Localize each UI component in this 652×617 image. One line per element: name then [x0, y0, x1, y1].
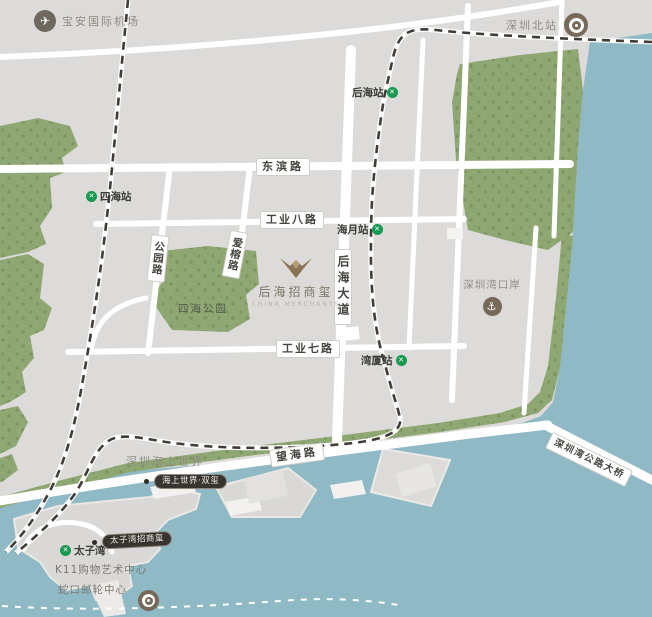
green-area-left-top: [0, 118, 78, 258]
houhai-cmsk-logo-emblem: [278, 256, 314, 280]
plane-icon: ✈: [34, 10, 56, 32]
poi-airport: ✈ 宝安国际机场: [34, 10, 140, 32]
poi-cruise-center-label: 蛇口邮轮中心: [58, 582, 127, 597]
poi-bay-port: 深圳湾口岸 ⚓: [452, 277, 532, 316]
metro-icon: ✕: [86, 191, 97, 202]
anchor-icon: ⚓: [483, 297, 502, 316]
station-label: 海月站: [337, 222, 369, 237]
poi-bay-port-label: 深圳湾口岸: [452, 277, 532, 292]
building-block: [447, 228, 463, 239]
road-west-connector: [90, 298, 146, 352]
poi-north-station-label: 深圳北站: [506, 17, 558, 33]
poi-north-station: 深圳北站: [506, 13, 588, 37]
poi-sihai-park-label: 四海公园: [178, 301, 228, 316]
map-base-layer: [0, 0, 652, 617]
road-label-gongye7: 工业七路: [276, 340, 340, 358]
green-area-left-low: [0, 406, 28, 454]
metro-icon: ✕: [372, 224, 383, 235]
metro-icon: ✕: [60, 545, 71, 556]
train-target-icon: [564, 13, 588, 37]
poi-dot-marker: [144, 479, 149, 484]
road-label-dongbin: 东滨路: [256, 158, 310, 176]
metro-icon: ✕: [396, 355, 407, 366]
poi-sea-world-label: 深圳海上世界: [126, 453, 204, 469]
project-logo-name: 后海招商玺: [244, 283, 348, 300]
green-area-right: [452, 49, 583, 250]
map-canvas: 东滨路 工业八路 工业七路 望海路 后海大道 公园路 爱榕路 深圳湾公路大桥 ✕…: [0, 0, 652, 617]
station-houhai: 后海站 ✕: [352, 85, 398, 100]
road-vertical-530: [524, 228, 536, 413]
station-label: 四海站: [100, 189, 132, 204]
poi-sea-world-twin: 海上世界·双玺: [144, 474, 227, 489]
project-logo: 后海招商玺 CHINA MERCHANTS: [244, 256, 348, 308]
poi-airport-label: 宝安国际机场: [62, 13, 140, 29]
station-haiyue: 海月站 ✕: [337, 222, 383, 237]
green-area-left-mid: [0, 254, 52, 406]
poi-dot-marker: [92, 540, 97, 545]
project-logo-subtext: CHINA MERCHANTS: [244, 301, 348, 308]
road-gongye7: [68, 346, 464, 352]
station-label: 湾厦站: [361, 353, 393, 368]
metro-icon: ✕: [387, 87, 398, 98]
green-area-left-low2: [0, 454, 18, 482]
building-block: [343, 326, 359, 340]
sea-world-twin-badge: 海上世界·双玺: [154, 474, 227, 489]
station-wanxia: 湾厦站 ✕: [361, 353, 407, 368]
station-sihai: ✕ 四海站: [86, 189, 132, 204]
station-label: 后海站: [352, 85, 384, 100]
road-houhai-avenue: [337, 50, 351, 441]
road-vertical-413: [409, 40, 423, 348]
road-label-gongye8: 工业八路: [260, 211, 324, 229]
port-emblem-icon: [138, 590, 159, 611]
poi-k11-label: K11购物艺术中心: [55, 562, 147, 577]
